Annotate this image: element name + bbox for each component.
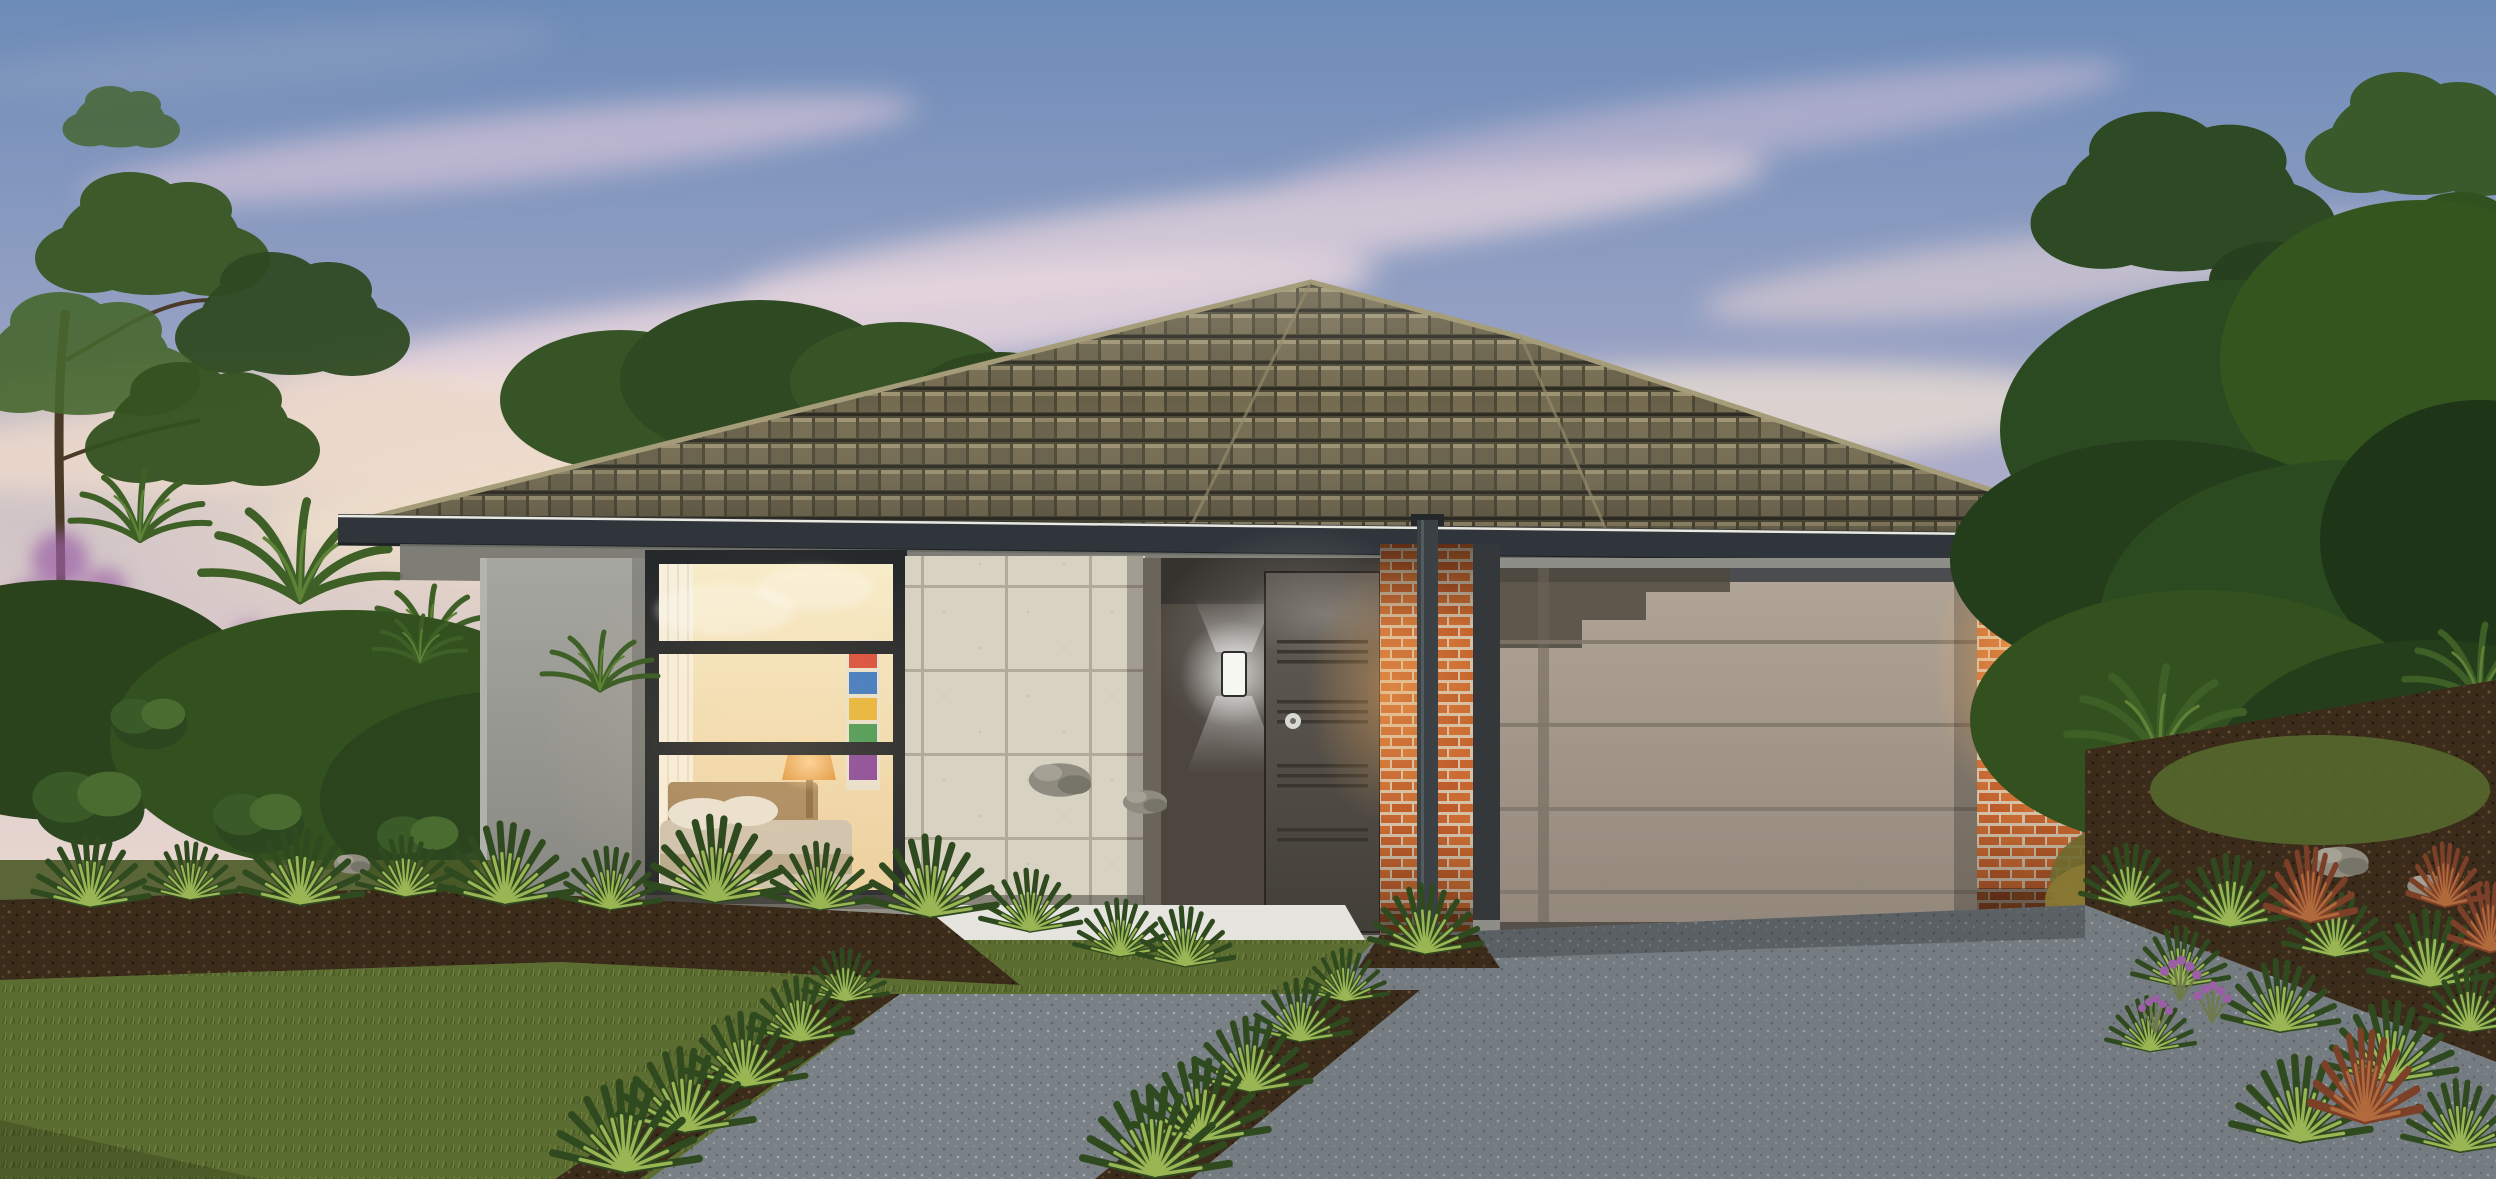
house-exterior-render [0,0,2496,1179]
garage-reveal [1473,544,1500,920]
garage-opening [1473,544,1977,936]
sectional-garage-door [1500,568,1977,936]
rear-lawn-patch [2150,735,2490,845]
render-scene [0,0,2496,1179]
